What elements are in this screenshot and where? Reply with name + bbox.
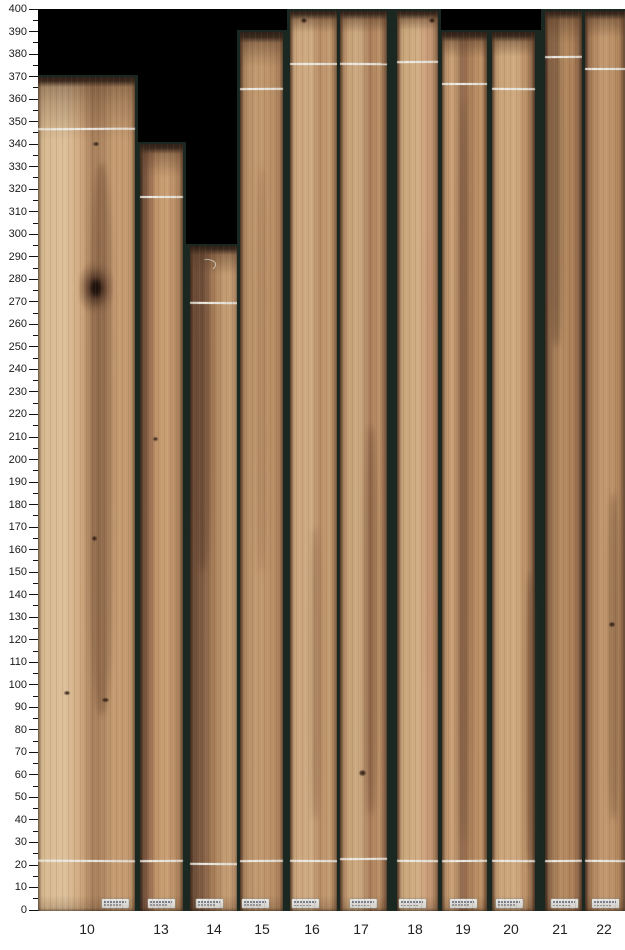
y-major-tick [29,369,38,370]
y-major-tick [29,459,38,460]
chalk-line-bottom [140,860,183,862]
y-minor-tick [33,808,38,809]
y-tick-label: 240 [0,363,27,375]
y-major-tick [29,234,38,235]
y-tick-label: 150 [0,566,27,578]
y-minor-tick [33,268,38,269]
y-major-tick [29,279,38,280]
board-id-sticker [399,899,426,908]
y-major-tick [29,752,38,753]
board-cell-10[interactable] [38,75,138,911]
y-major-tick [29,437,38,438]
y-tick-label: 90 [0,701,27,713]
y-major-tick [29,211,38,212]
y-major-tick [29,797,38,798]
y-minor-tick [33,200,38,201]
y-minor-tick [33,876,38,877]
y-major-tick [29,391,38,392]
y-minor-tick [33,87,38,88]
board-id-sticker [592,899,619,908]
y-tick-label: 120 [0,634,27,646]
y-minor-tick [33,132,38,133]
y-major-tick [29,617,38,618]
board-wood-10 [38,77,135,911]
grain-streak [458,99,469,842]
chalk-line-bottom [397,860,438,862]
y-tick-label: 40 [0,814,27,826]
y-major-tick [29,729,38,730]
x-label-board-15: 15 [245,921,279,937]
y-tick-label: 320 [0,183,27,195]
y-tick-label: 60 [0,769,27,781]
y-minor-tick [33,20,38,21]
y-minor-tick [33,515,38,516]
board-cell-14[interactable] [185,244,240,911]
chalk-line-bottom [340,858,387,860]
x-label-board-14: 14 [197,921,231,937]
y-major-tick [29,774,38,775]
y-minor-tick [33,110,38,111]
board-top-cap [585,11,625,38]
board-cell-18[interactable] [393,9,441,911]
y-minor-tick [33,560,38,561]
grain-streak [256,167,266,572]
chalk-line-top [397,61,438,63]
knot-dot-feature [153,437,158,441]
board-top-cap [545,11,582,44]
y-tick-label: 140 [0,589,27,601]
y-major-tick [29,144,38,145]
y-minor-tick [33,628,38,629]
chalk-line-bottom [38,860,135,862]
knot-feature [79,262,113,314]
chalk-line-top [442,83,487,85]
chalk-line-top [190,302,238,304]
y-minor-tick [33,583,38,584]
x-label-board-18: 18 [398,921,432,937]
y-tick-label: 300 [0,228,27,240]
y-minor-tick [33,380,38,381]
y-major-tick [29,301,38,302]
y-tick-label: 390 [0,26,27,38]
y-minor-tick [33,358,38,359]
y-major-tick [29,166,38,167]
y-tick-label: 210 [0,431,27,443]
y-major-tick [29,639,38,640]
y-tick-label: 180 [0,499,27,511]
plot-area [38,9,625,911]
chalk-line-top [240,88,283,90]
y-major-tick [29,54,38,55]
y-major-tick [29,887,38,888]
y-major-tick [29,9,38,10]
board-cell-16[interactable] [287,9,340,911]
y-minor-tick [33,696,38,697]
y-minor-tick [33,448,38,449]
y-tick-label: 290 [0,251,27,263]
y-tick-label: 70 [0,746,27,758]
x-label-board-17: 17 [344,921,378,937]
y-major-tick [29,121,38,122]
y-tick-label: 130 [0,611,27,623]
y-tick-label: 400 [0,3,27,15]
y-major-tick [29,684,38,685]
grain-streak [310,527,321,820]
y-major-tick [29,910,38,911]
board-wood-15 [240,32,283,911]
y-minor-tick [33,786,38,787]
board-top-cap [290,11,337,32]
board-top-cap [240,32,283,67]
board-cell-22[interactable] [582,9,625,911]
y-tick-label: 220 [0,408,27,420]
y-tick-label: 330 [0,161,27,173]
board-wood-19 [442,32,487,911]
chalk-line-top [290,63,337,65]
y-tick-label: 350 [0,116,27,128]
y-tick-label: 10 [0,881,27,893]
x-label-board-22: 22 [587,921,621,937]
y-minor-tick [33,741,38,742]
y-minor-tick [33,177,38,178]
y-major-tick [29,549,38,550]
y-major-tick [29,482,38,483]
y-major-tick [29,256,38,257]
y-minor-tick [33,673,38,674]
y-major-tick [29,865,38,866]
grain-streak [549,9,564,347]
board-id-sticker [551,899,578,908]
chalk-line-bottom [442,860,487,862]
board-wood-20 [492,32,535,911]
knot-dot-feature [301,18,307,23]
chalk-line-top [340,63,387,65]
grain-streak [87,162,116,716]
board-wood-14 [190,246,238,911]
y-minor-tick [33,831,38,832]
y-tick-label: 340 [0,138,27,150]
knot-dot-feature [429,18,435,23]
chalk-line-top [585,68,625,70]
knot-dot-feature [609,622,615,627]
knot-dot-feature [359,770,366,776]
board-top-cap [340,11,387,32]
y-minor-tick [33,718,38,719]
y-minor-tick [33,313,38,314]
y-major-tick [29,572,38,573]
board-wood-17 [340,11,387,911]
y-major-tick [29,346,38,347]
y-tick-label: 310 [0,206,27,218]
grain-streak [526,572,535,865]
y-major-tick [29,414,38,415]
board-cell-13[interactable] [137,142,186,911]
knot-dot-feature [102,698,109,702]
y-tick-label: 250 [0,341,27,353]
board-cell-17[interactable] [337,9,393,911]
y-tick-label: 50 [0,791,27,803]
y-minor-tick [33,898,38,899]
board-cell-21[interactable] [541,9,585,911]
y-major-tick [29,819,38,820]
board-id-sticker [148,899,175,908]
x-label-board-21: 21 [543,921,577,937]
board-id-sticker [496,899,523,908]
chalk-line-bottom [190,863,238,865]
board-measurement-chart: 4003903803703603503403303203103002902802… [0,0,625,950]
y-minor-tick [33,335,38,336]
y-major-tick [29,189,38,190]
y-major-tick [29,842,38,843]
y-major-tick [29,31,38,32]
x-label-board-13: 13 [144,921,178,937]
y-minor-tick [33,605,38,606]
y-major-tick [29,504,38,505]
board-wood-16 [290,11,337,911]
board-top-cap [38,77,135,141]
knot-dot-feature [64,691,70,695]
y-tick-label: 270 [0,296,27,308]
board-cell-19[interactable] [439,30,490,911]
board-cell-20[interactable] [489,30,541,911]
y-tick-label: 110 [0,656,27,668]
grain-streak [607,493,620,820]
x-label-board-16: 16 [295,921,329,937]
y-major-tick [29,707,38,708]
y-tick-label: 280 [0,273,27,285]
y-major-tick [29,662,38,663]
y-tick-label: 260 [0,318,27,330]
y-minor-tick [33,155,38,156]
chalk-line-bottom [492,860,535,862]
y-minor-tick [33,853,38,854]
grain-streak [364,426,377,816]
y-minor-tick [33,403,38,404]
y-major-tick [29,324,38,325]
board-id-sticker [242,899,269,908]
y-tick-label: 370 [0,71,27,83]
board-wood-18 [397,11,438,911]
y-tick-label: 230 [0,386,27,398]
y-major-tick [29,99,38,100]
y-tick-label: 0 [0,904,27,916]
y-minor-tick [33,493,38,494]
chalk-line-bottom [240,860,283,862]
chalk-line-bottom [585,860,625,862]
board-top-cap [492,32,535,56]
board-top-cap [442,32,487,58]
chalk-line-bottom [290,860,337,862]
y-minor-tick [33,65,38,66]
y-minor-tick [33,425,38,426]
board-wood-13 [140,144,183,911]
y-major-tick [29,527,38,528]
y-major-tick [29,594,38,595]
knot-dot-feature [93,142,99,146]
chalk-line-top [492,88,535,90]
y-minor-tick [33,538,38,539]
chalk-line-bottom [545,860,582,862]
y-minor-tick [33,763,38,764]
y-tick-label: 20 [0,859,27,871]
chalk-line-top [140,196,183,198]
y-minor-tick [33,290,38,291]
grain-streak [425,234,435,685]
grain-streak [193,246,212,573]
y-minor-tick [33,42,38,43]
y-minor-tick [33,223,38,224]
board-cell-15[interactable] [237,30,287,911]
y-tick-label: 380 [0,48,27,60]
chalk-line-top [545,56,582,58]
y-tick-label: 200 [0,454,27,466]
chalk-line-top [38,128,135,131]
y-tick-label: 30 [0,836,27,848]
board-id-sticker [350,899,377,908]
board-top-cap [140,144,183,178]
y-tick-label: 160 [0,544,27,556]
y-tick-label: 80 [0,724,27,736]
y-tick-label: 100 [0,679,27,691]
y-major-tick [29,76,38,77]
x-label-board-20: 20 [494,921,528,937]
board-id-sticker [102,899,129,908]
board-id-sticker [450,899,477,908]
y-tick-label: 360 [0,93,27,105]
board-wood-22 [585,11,625,911]
x-label-board-19: 19 [446,921,480,937]
y-tick-label: 170 [0,521,27,533]
board-id-sticker [292,899,319,908]
board-wood-21 [545,11,582,911]
y-minor-tick [33,245,38,246]
y-tick-label: 190 [0,476,27,488]
x-label-board-10: 10 [70,921,104,937]
y-minor-tick [33,470,38,471]
y-minor-tick [33,651,38,652]
knot-dot-feature [92,536,97,541]
board-id-sticker [196,899,223,908]
